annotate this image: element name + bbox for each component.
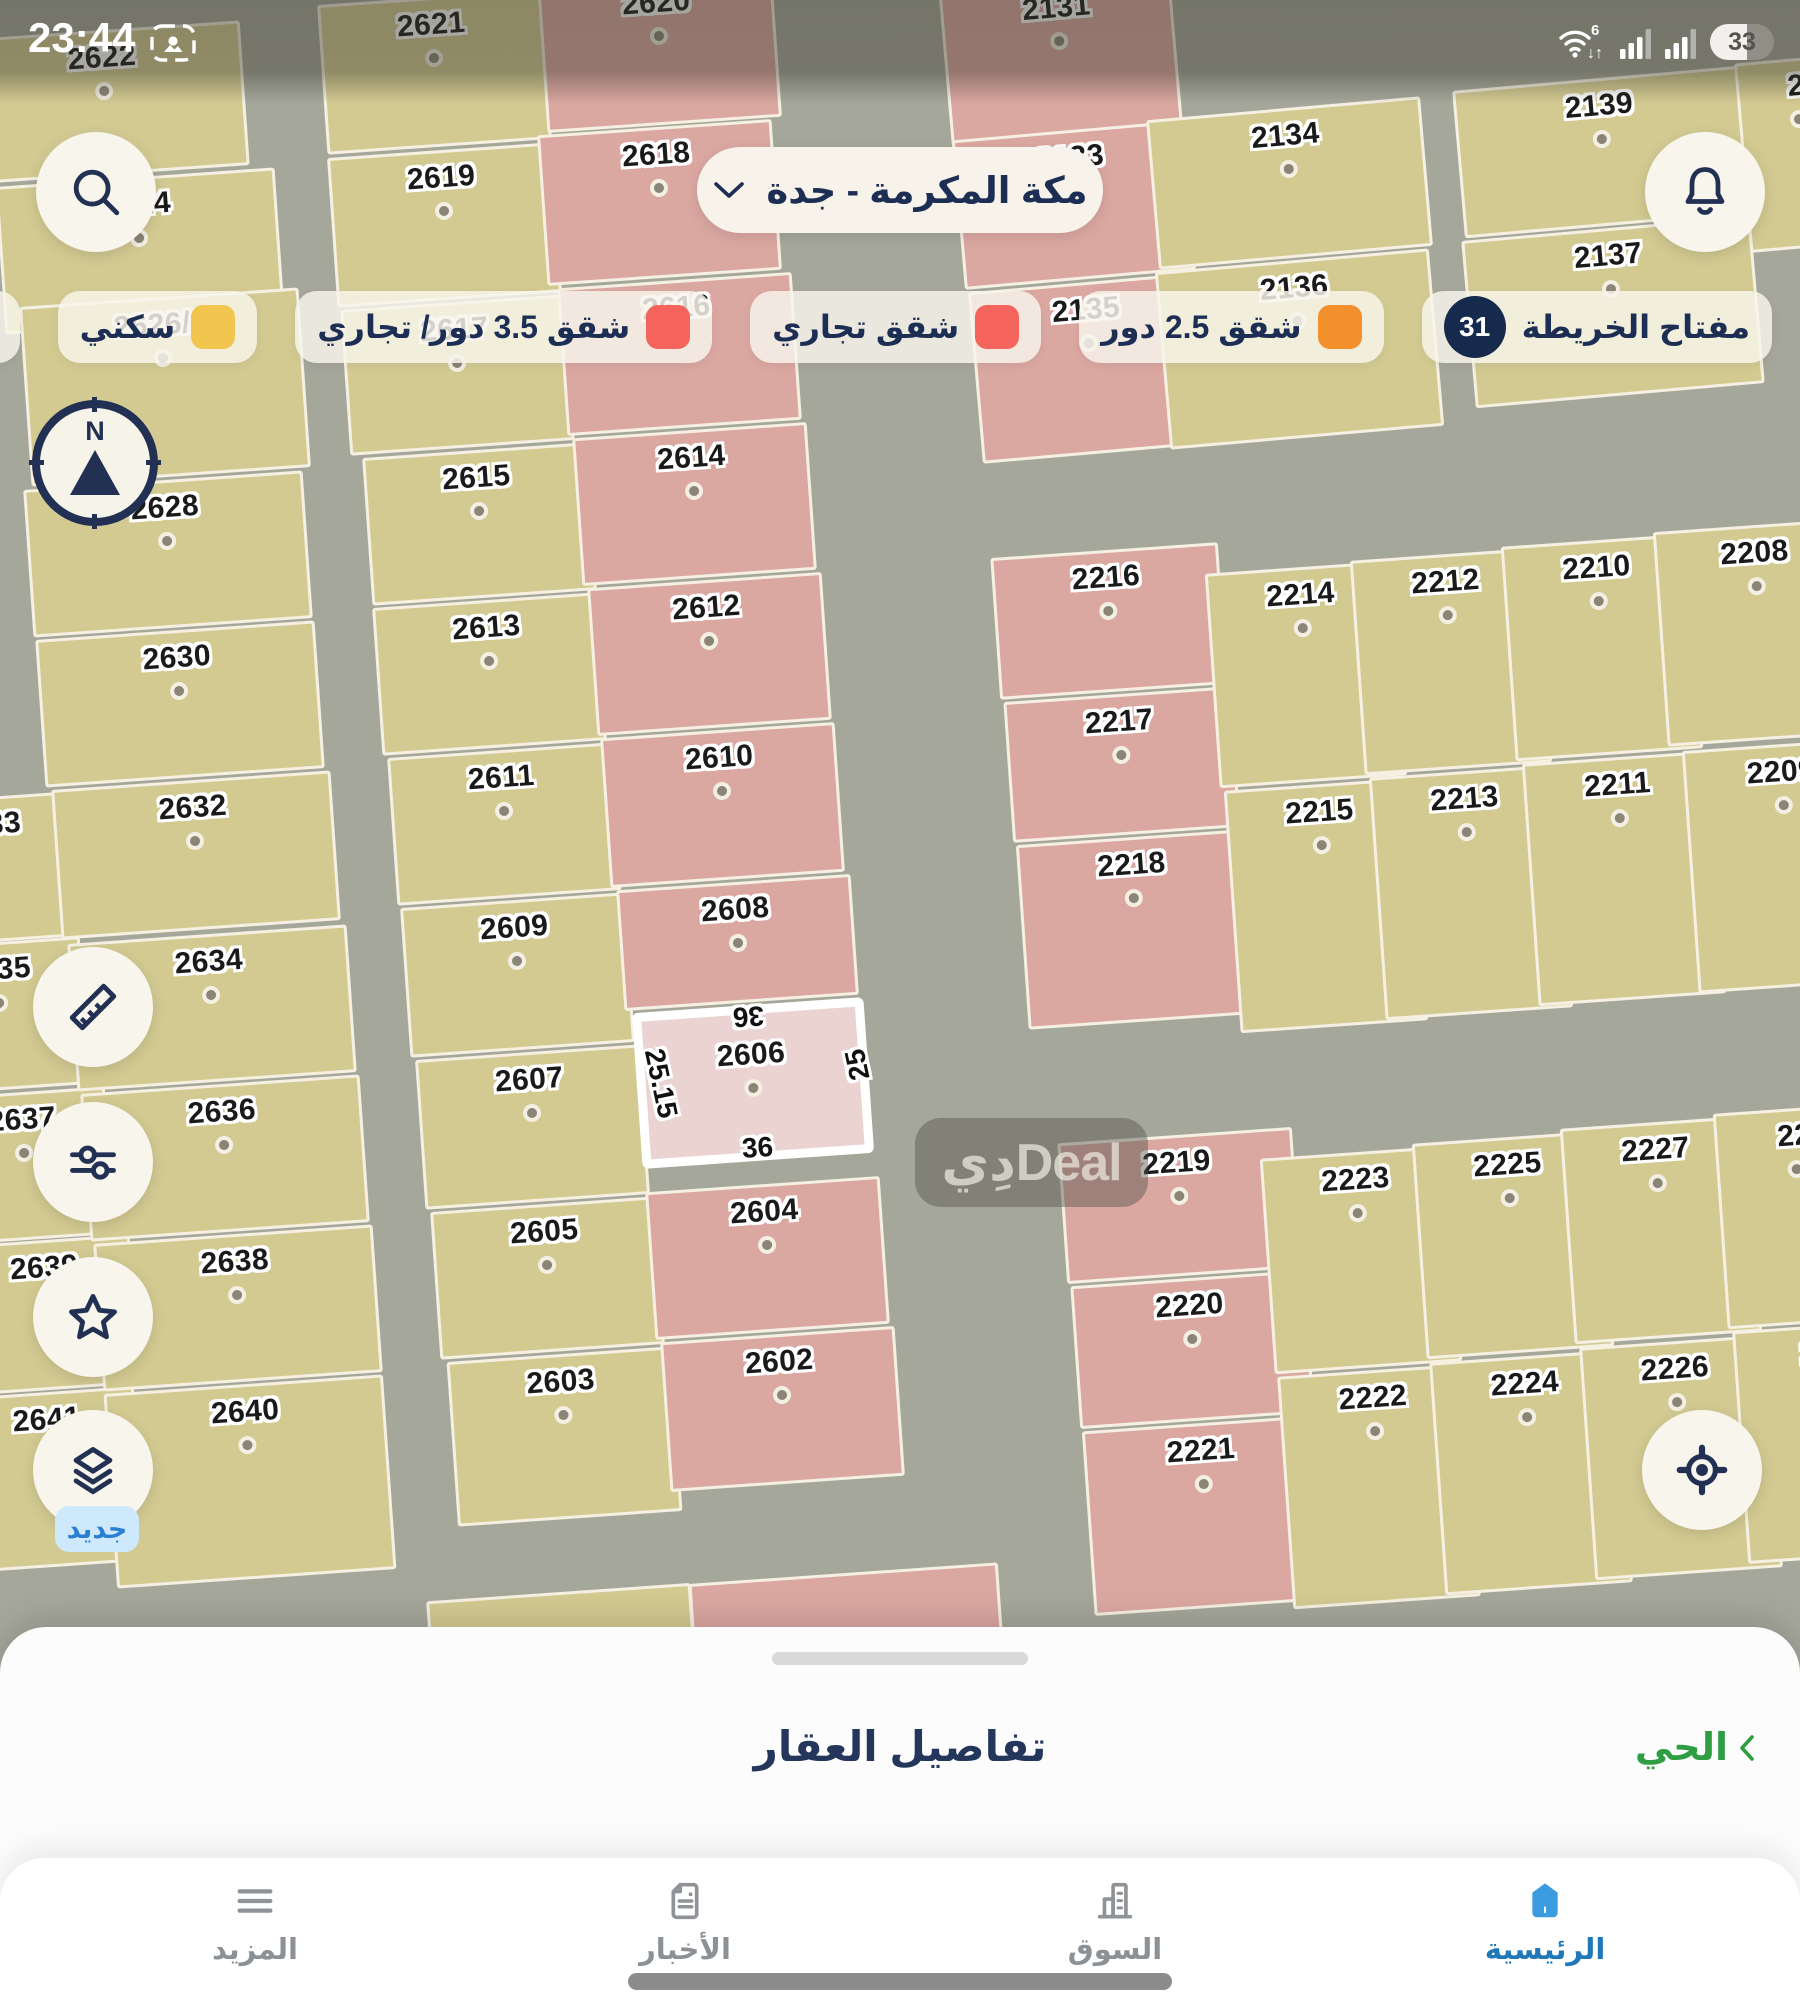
- plot-number-label: 2608: [700, 891, 771, 930]
- cell-signal-icon: [1620, 24, 1654, 60]
- map-plot-2216[interactable]: 2216: [990, 542, 1227, 700]
- map-plot-2602[interactable]: 2602: [660, 1326, 905, 1492]
- plot-dot: [1112, 745, 1131, 764]
- plot-dot: [1293, 619, 1312, 638]
- plot-number-label: 2131: [1021, 0, 1092, 28]
- plot-dot: [1194, 1474, 1213, 1493]
- plot-dot: [169, 681, 188, 700]
- plot-dot: [0, 993, 9, 1012]
- city-selector[interactable]: مكة المكرمة - جدة: [697, 147, 1103, 233]
- plot-number-label: 2209: [1746, 753, 1800, 792]
- screen-record-icon: [150, 24, 196, 62]
- plot-number-label: 2615: [441, 459, 512, 498]
- map-key-count-badge: 31: [1444, 296, 1506, 358]
- plot-number-label: 2215: [1284, 793, 1355, 832]
- plot-dot: [469, 501, 488, 520]
- legend-chip-label: سكني: [80, 308, 176, 346]
- cell-signal-icon-2: [1665, 24, 1699, 60]
- map-plot-2611[interactable]: 2611: [387, 742, 622, 905]
- svg-text:6: 6: [1591, 22, 1599, 39]
- plot-dot: [712, 781, 731, 800]
- watermark-text: دِيDeal: [941, 1133, 1121, 1193]
- map-plot-2606[interactable]: 2606363625.1525: [632, 997, 874, 1169]
- chevron-left-icon: [1738, 1733, 1756, 1763]
- map-plot-2604[interactable]: 2604: [645, 1176, 890, 1340]
- plot-dot: [1592, 129, 1612, 149]
- map-plot-2218[interactable]: 2218: [1016, 829, 1256, 1029]
- nav-label-home: الرئيسية: [1485, 1932, 1606, 1967]
- ruler-icon: [64, 978, 122, 1036]
- selected-plot-dimension: 36: [732, 999, 765, 1033]
- home-indicator[interactable]: [628, 1973, 1172, 1990]
- plot-number-label: 2227: [1620, 1131, 1691, 1170]
- map-plot-2607[interactable]: 2607: [415, 1044, 650, 1209]
- map-plot-2605[interactable]: 2605: [430, 1196, 665, 1359]
- sheet-title: تفاصيل العقار: [0, 1722, 1800, 1771]
- nav-label-more: المزيد: [212, 1932, 298, 1967]
- plot-number-label: 2613: [451, 609, 522, 648]
- measure-button[interactable]: [33, 947, 153, 1067]
- plot-dot: [1099, 601, 1118, 620]
- layers-icon: [64, 1441, 122, 1499]
- map-plot-2614[interactable]: 2614: [572, 422, 817, 586]
- selected-plot-dimension: 25.15: [638, 1046, 684, 1121]
- plot-dot: [537, 1255, 556, 1274]
- wifi-icon: 6 ↓↑: [1557, 22, 1609, 62]
- plot-dot: [1457, 823, 1476, 842]
- legend-chip-0[interactable]: شقق 2.5 دور: [1079, 291, 1383, 363]
- plot-number-label: 2213: [1429, 780, 1500, 819]
- plot-dot: [1438, 606, 1457, 625]
- plot-number-label: 2212: [1410, 563, 1481, 602]
- plot-dot: [227, 1285, 246, 1304]
- plot-number-label: 2620: [621, 0, 692, 22]
- filters-button[interactable]: [33, 1102, 153, 1222]
- plot-dot: [1049, 31, 1069, 51]
- status-time: 23:44: [28, 14, 135, 62]
- plot-number-label: 2633: [0, 806, 22, 845]
- plot-dot: [424, 48, 443, 67]
- status-icons: 6 ↓↑ 33: [1557, 22, 1774, 62]
- plot-dot: [1366, 1422, 1385, 1441]
- plot-dot: [684, 481, 703, 500]
- map-plot-2613[interactable]: 2613: [372, 592, 607, 755]
- search-icon: [67, 163, 125, 221]
- plot-dot: [649, 178, 668, 197]
- plot-number-label: 2614: [656, 439, 727, 478]
- chevron-down-icon: [712, 180, 746, 200]
- plot-number-label: 2640: [210, 1393, 281, 1432]
- map-plot-2209[interactable]: 2209: [1682, 737, 1800, 993]
- plot-number-label: 2217: [1084, 703, 1155, 742]
- plot-number-label: 2211: [1583, 766, 1652, 805]
- plot-dot: [479, 651, 498, 670]
- plot-dot: [238, 1435, 257, 1454]
- buildings-icon: [1092, 1878, 1138, 1924]
- bell-icon: [1675, 162, 1735, 222]
- plot-number-label: 2632: [157, 789, 228, 828]
- map-plot-2134[interactable]: 2134: [1146, 96, 1433, 269]
- compass-needle-icon: [70, 450, 120, 495]
- plot-number-label: 2630: [142, 639, 213, 678]
- plot-number-label: 2139: [1563, 86, 1634, 126]
- legend-swatch-icon: [191, 305, 235, 349]
- selected-plot-dimension: 36: [741, 1131, 774, 1165]
- legend-swatch-icon: [1318, 305, 1362, 349]
- map-plot-2609[interactable]: 2609: [400, 892, 635, 1057]
- compass-tick-w: [29, 460, 44, 465]
- plot-dot: [185, 831, 204, 850]
- plot-number-label: 2134: [1250, 116, 1321, 156]
- plot-number-label: 2635: [0, 951, 32, 990]
- plot-dot: [1348, 1204, 1367, 1223]
- map-legend: مفتاح الخريطة 31 شقق 2.5 دورشقق تجاريشقق…: [0, 291, 1772, 363]
- plot-number-label: 2208: [1719, 534, 1790, 573]
- plot-number-label: 2219: [1141, 1144, 1212, 1183]
- plot-number-label: 2609: [479, 909, 550, 948]
- plot-number-label: 2621: [396, 6, 467, 45]
- compass-tick-n: [92, 397, 97, 412]
- plot-dot: [1747, 577, 1766, 596]
- plot-number-label: 2611: [467, 759, 536, 798]
- plot-number-label: 2226: [1640, 1350, 1711, 1389]
- plot-dot: [744, 1078, 763, 1097]
- selected-plot-dimension: 25: [839, 1046, 877, 1083]
- plot-dot: [201, 985, 220, 1004]
- plot-number-label: 2220: [1154, 1287, 1225, 1326]
- plot-number-label: 2137: [1573, 236, 1644, 276]
- plot-number-label: 2224: [1490, 1365, 1561, 1404]
- district-link[interactable]: الحي: [1635, 1725, 1756, 1770]
- plot-number-label: 2602: [744, 1343, 815, 1382]
- compass-button[interactable]: N: [32, 400, 158, 526]
- plot-dot: [1169, 1186, 1188, 1205]
- plot-dot: [553, 1405, 572, 1424]
- legend-chip-label: شقق 3.5 دور/ تجاري: [317, 308, 630, 346]
- plot-dot: [728, 933, 747, 952]
- nav-item-news[interactable]: الأخبار: [575, 1878, 795, 1967]
- plot-dot: [494, 801, 513, 820]
- plot-dot: [1610, 809, 1629, 828]
- new-badge-label: جديد: [67, 1514, 128, 1545]
- legend-chip-1[interactable]: شقق تجاري: [750, 291, 1041, 363]
- plot-number-label: 2218: [1096, 846, 1167, 885]
- sliders-icon: [64, 1133, 122, 1191]
- plot-number-label: 2607: [494, 1061, 565, 1100]
- plot-number-label: 2214: [1265, 576, 1336, 615]
- home-icon: [1522, 1878, 1568, 1924]
- plot-number-label: 2618: [621, 136, 692, 175]
- nav-label-market: السوق: [1068, 1932, 1162, 1967]
- nav-item-more[interactable]: المزيد: [145, 1878, 365, 1967]
- plot-number-label: 2636: [187, 1093, 258, 1132]
- map-plot-2621[interactable]: 2621: [317, 0, 552, 155]
- city-selector-label: مكة المكرمة - جدة: [766, 169, 1087, 212]
- plot-dot: [1668, 1393, 1687, 1412]
- map-plot-2603[interactable]: 2603: [447, 1346, 683, 1526]
- plot-number-label: 2612: [671, 589, 742, 628]
- legend-swatch-icon: [646, 305, 690, 349]
- map-plot-2612[interactable]: 2612: [587, 572, 832, 736]
- plot-dot: [1648, 1174, 1667, 1193]
- battery-indicator: 33: [1710, 24, 1774, 60]
- plot-number-label: 2223: [1320, 1161, 1391, 1200]
- plot-dot: [1312, 836, 1331, 855]
- star-icon: [64, 1288, 122, 1346]
- map-plot-2632[interactable]: 2632: [51, 770, 341, 939]
- plot-dot: [1182, 1329, 1201, 1348]
- plot-dot: [522, 1103, 541, 1122]
- plot-dot: [1124, 888, 1143, 907]
- plot-dot: [1789, 109, 1800, 129]
- map-plot-2208[interactable]: 2208: [1653, 518, 1800, 746]
- crosshair-icon: [1671, 1439, 1733, 1501]
- plot-dot: [214, 1135, 233, 1154]
- map-plot-2620[interactable]: 2620: [537, 0, 782, 133]
- new-feature-badge: جديد: [55, 1506, 139, 1552]
- map-plot-2610[interactable]: 2610: [600, 722, 845, 888]
- plot-dot: [1279, 159, 1299, 179]
- map-plot-2619[interactable]: 2619: [327, 142, 562, 307]
- plot-number-label: 2603: [525, 1363, 596, 1402]
- plot-number-label: 2610: [684, 739, 755, 778]
- svg-text:↓↑: ↓↑: [1587, 45, 1603, 62]
- map-plot-2608[interactable]: 2608: [616, 874, 859, 1011]
- legend-chip-2[interactable]: شقق 3.5 دور/ تجاري: [295, 291, 712, 363]
- legend-chip-label: شقق تجاري: [772, 308, 959, 346]
- legend-chip-3[interactable]: سكني: [58, 291, 258, 363]
- plot-dot: [95, 81, 114, 100]
- compass-north-label: N: [85, 416, 105, 447]
- legend-map-key-label: مفتاح الخريطة: [1522, 308, 1750, 346]
- nav-item-market[interactable]: السوق: [1005, 1878, 1225, 1967]
- app-root: 26332635263726392641262226242626/1262826…: [0, 0, 1800, 1998]
- legend-chip-label: شقق 2.5 دور: [1101, 308, 1301, 346]
- plot-number-label: 2606: [716, 1036, 787, 1075]
- map-plot-2217[interactable]: 2217: [1003, 686, 1240, 843]
- plot-number-label: 22: [1776, 1118, 1800, 1154]
- favorites-button[interactable]: [33, 1257, 153, 1377]
- search-button[interactable]: [36, 132, 156, 252]
- plot-number-label: 2225: [1472, 1146, 1543, 1185]
- plot-number-label: 2638: [200, 1243, 271, 1282]
- plot-dot: [1589, 592, 1608, 611]
- compass-tick-e: [146, 460, 161, 465]
- plot-number-label: 2221: [1166, 1432, 1237, 1471]
- plot-dot: [1774, 796, 1793, 815]
- plot-number-label: 2: [1786, 69, 1800, 104]
- plot-dot: [14, 1143, 33, 1162]
- plot-number-label: 2619: [406, 159, 477, 198]
- plot-dot: [507, 951, 526, 970]
- legend-map-key-chip[interactable]: مفتاح الخريطة 31: [1422, 291, 1772, 363]
- sheet-drag-handle[interactable]: [772, 1652, 1028, 1665]
- deal-watermark: دِيDeal: [915, 1118, 1148, 1207]
- plot-number-label: 2605: [509, 1213, 580, 1252]
- map-plot-22[interactable]: 22: [1713, 1103, 1800, 1330]
- plot-dot: [157, 531, 176, 550]
- plot-dot: [1500, 1189, 1519, 1208]
- plot-dot: [434, 201, 453, 220]
- plot-number-label: 2216: [1071, 559, 1142, 598]
- plot-number-label: 2210: [1561, 549, 1632, 588]
- plot-dot: [649, 26, 668, 45]
- plot-number-label: 2634: [174, 943, 245, 982]
- plot-number-label: 2604: [729, 1193, 800, 1232]
- legend-swatch-icon: [975, 305, 1019, 349]
- legend-chip-4[interactable]: أع: [0, 291, 20, 363]
- nav-item-home[interactable]: الرئيسية: [1435, 1878, 1655, 1967]
- compass-tick-s: [92, 514, 97, 529]
- plot-dot: [757, 1235, 776, 1254]
- map-plot-2615[interactable]: 2615: [362, 442, 597, 605]
- plot-dot: [699, 631, 718, 650]
- news-icon: [662, 1878, 708, 1924]
- notifications-button[interactable]: [1645, 132, 1765, 252]
- menu-icon: [232, 1878, 278, 1924]
- plot-dot: [1518, 1408, 1537, 1427]
- map-plot-2630[interactable]: 2630: [35, 620, 325, 787]
- plot-dot: [772, 1385, 791, 1404]
- plot-dot: [1787, 1160, 1800, 1179]
- nav-label-news: الأخبار: [639, 1932, 731, 1967]
- locate-me-button[interactable]: [1642, 1410, 1762, 1530]
- district-link-label: الحي: [1635, 1725, 1728, 1770]
- plot-number-label: 2222: [1338, 1379, 1409, 1418]
